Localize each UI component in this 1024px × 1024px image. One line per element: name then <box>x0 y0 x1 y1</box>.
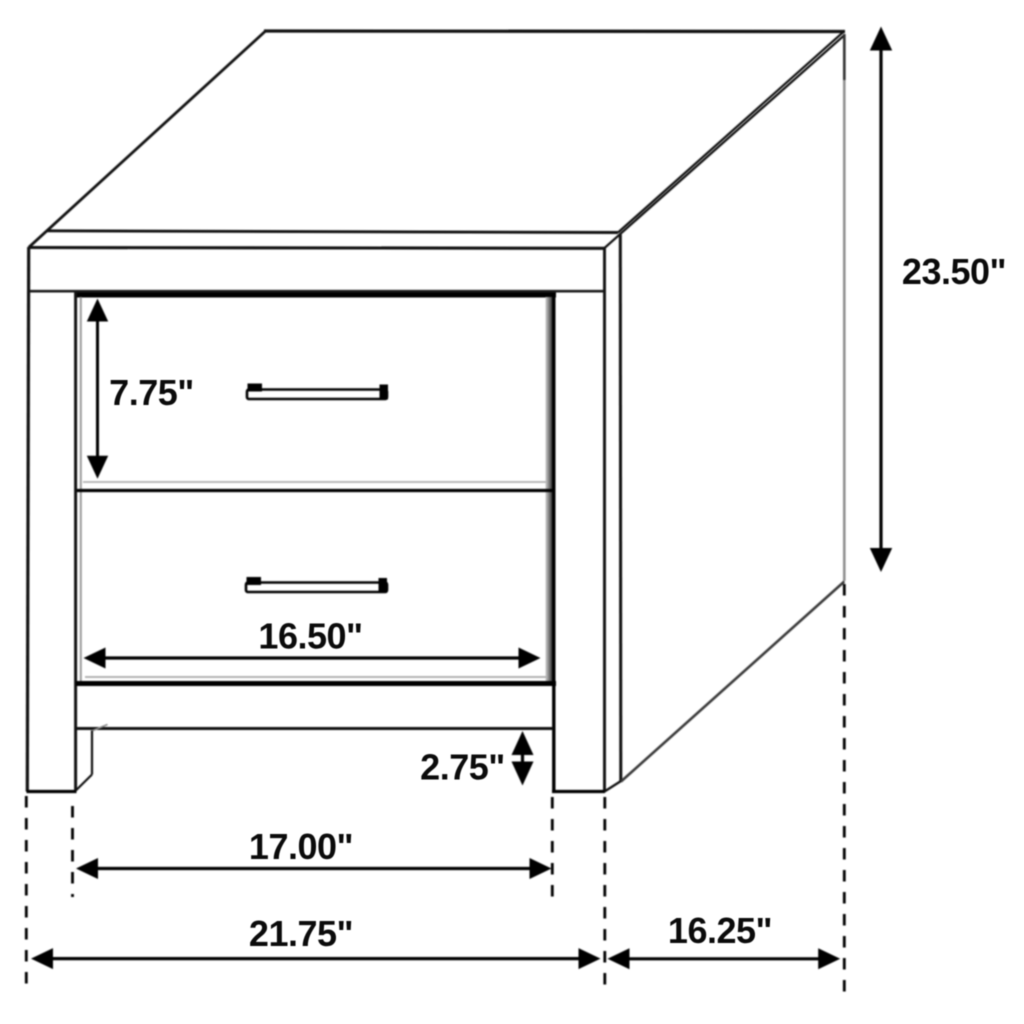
svg-text:2.75": 2.75" <box>420 747 505 788</box>
svg-text:21.75": 21.75" <box>249 913 353 954</box>
svg-text:7.75": 7.75" <box>109 372 194 413</box>
svg-text:23.50": 23.50" <box>902 251 1006 292</box>
svg-text:17.00": 17.00" <box>249 826 353 867</box>
svg-text:16.50": 16.50" <box>258 616 362 657</box>
svg-text:16.25": 16.25" <box>668 910 772 951</box>
